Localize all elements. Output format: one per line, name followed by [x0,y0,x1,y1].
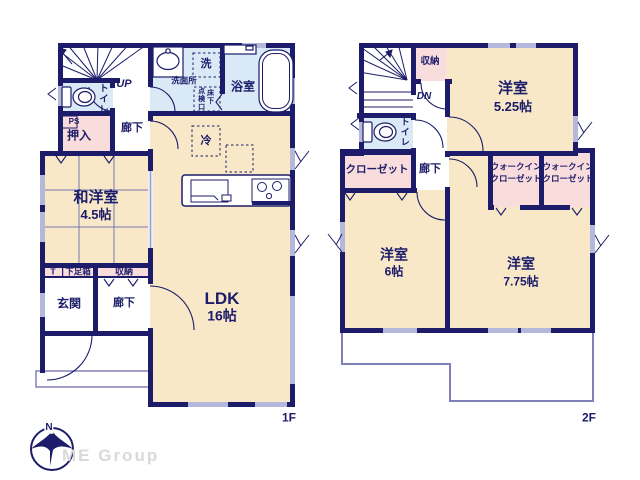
ps-label: PS [69,118,80,126]
bed775-size: 7.75帖 [503,276,538,289]
genkan-label: 玄関 [57,298,81,311]
balcony-outline [342,333,593,401]
floor2-plan [328,43,609,401]
floor2-fixtures [363,122,396,142]
hall2-label: 廊下 [419,164,441,176]
floor2-label: 2F [582,412,596,425]
brand-logo-text: ME Group [62,446,159,466]
floor1-plan [36,43,309,407]
laundry-label: 洗 [201,59,212,71]
toilet1-tank [62,87,71,107]
bed775-label: 洋室 [507,257,535,272]
toilet2-label: トイレ [399,117,408,147]
fridge-label: 冷 [201,136,212,148]
room-bed525-fill [447,43,578,153]
closet2-label: クローゼット [346,164,409,175]
wic1-label-line1: ウォークイン [490,163,541,172]
storage2-label: 収納 [420,57,439,67]
floorplan-canvas: UP トイレ PS 押入 廊下 洗 洗面所 点検口 床下 浴室 冷 和洋室 4.… [0,0,640,480]
washitsu-label: 和洋室 [73,190,118,206]
bed6-label: 洋室 [380,248,408,263]
wic2-label-line2: クローゼット [542,175,593,184]
floorplan-drawing [0,0,640,480]
entrance-porch [36,371,150,387]
ldk-size: 16帖 [207,309,237,324]
inspection-label: 点検口 [197,87,204,111]
room-ldk-fill [150,115,295,407]
toilet1-label: トイレ [97,83,107,115]
up-label: UP [116,79,131,91]
underfloor-label: 床下 [206,89,213,105]
oshiire-label: 押入 [67,130,91,143]
compass-north-label: N [44,423,53,434]
t-label: T [50,267,55,276]
room-hall1-upper-fill [113,81,150,153]
bed6-size: 6帖 [385,266,404,279]
bath-label: 浴室 [231,81,255,94]
floor1-label: 1F [282,412,296,425]
dn-label: DN [417,92,431,103]
washitsu-size: 4.5帖 [80,208,111,222]
bed525-label: 洋室 [498,81,528,97]
shoebox-label: 下足箱 [65,267,91,276]
hall1-upper-label: 廊下 [121,123,143,135]
storage1-label: 収納 [115,267,133,276]
wic1-label-line2: クローゼット [490,175,541,184]
hall1-lower-label: 廊下 [113,298,135,310]
bed525-size: 5.25帖 [494,100,532,114]
wic2-label-line1: ウォークイン [542,163,593,172]
ldk-label: LDK [205,290,240,308]
washroom-label: 洗面所 [171,77,197,86]
toilet2-tank [363,122,372,142]
